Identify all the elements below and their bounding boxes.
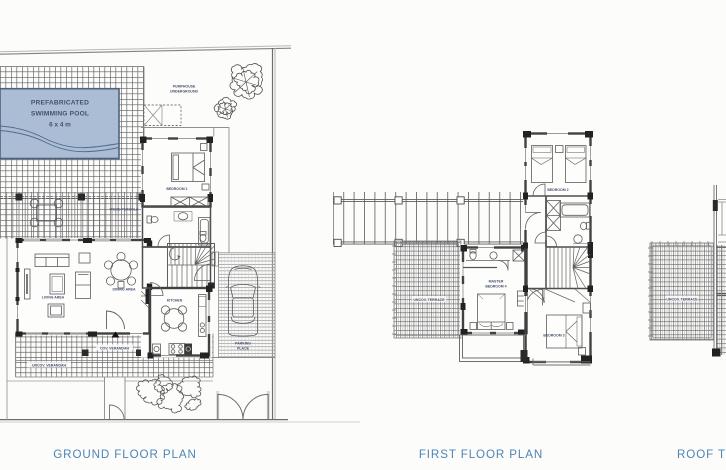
svg-text:FIRST FLOOR PLAN: FIRST FLOOR PLAN xyxy=(419,448,543,461)
svg-text:UNCOV. TERRACE: UNCOV. TERRACE xyxy=(666,298,698,302)
svg-text:GROUND FLOOR PLAN: GROUND FLOOR PLAN xyxy=(53,448,197,461)
svg-text:PARKING: PARKING xyxy=(235,342,251,346)
svg-text:UNCOV. VERANDAH: UNCOV. VERANDAH xyxy=(32,364,67,368)
svg-text:MASTER: MASTER xyxy=(489,280,504,284)
svg-text:LIVING AREA: LIVING AREA xyxy=(42,296,65,300)
svg-text:BEDROOM 1: BEDROOM 1 xyxy=(166,187,187,191)
svg-text:PUMPHOUSE: PUMPHOUSE xyxy=(173,85,196,89)
svg-text:KITCHEN: KITCHEN xyxy=(167,299,183,303)
svg-text:BEDROOM 4: BEDROOM 4 xyxy=(485,285,506,289)
svg-text:COV. VERANDAH: COV. VERANDAH xyxy=(100,347,130,351)
svg-text:UNCOV. TERRACE: UNCOV. TERRACE xyxy=(413,298,445,302)
svg-text:WOOD PERGOLA: WOOD PERGOLA xyxy=(110,208,139,212)
svg-text:6 x 4 m: 6 x 4 m xyxy=(49,122,71,129)
svg-text:ROOF TERRACE: ROOF TERRACE xyxy=(677,448,726,461)
svg-text:SWIMMING POOL: SWIMMING POOL xyxy=(31,111,89,118)
svg-text:PLACE: PLACE xyxy=(237,347,250,351)
svg-text:PREFABRICATED: PREFABRICATED xyxy=(31,100,89,107)
svg-text:BEDROOM 3: BEDROOM 3 xyxy=(543,334,564,338)
svg-text:DINING AREA: DINING AREA xyxy=(112,288,135,292)
svg-text:BEDROOM 2: BEDROOM 2 xyxy=(547,188,568,192)
svg-text:UNDERGROUND: UNDERGROUND xyxy=(170,90,198,94)
